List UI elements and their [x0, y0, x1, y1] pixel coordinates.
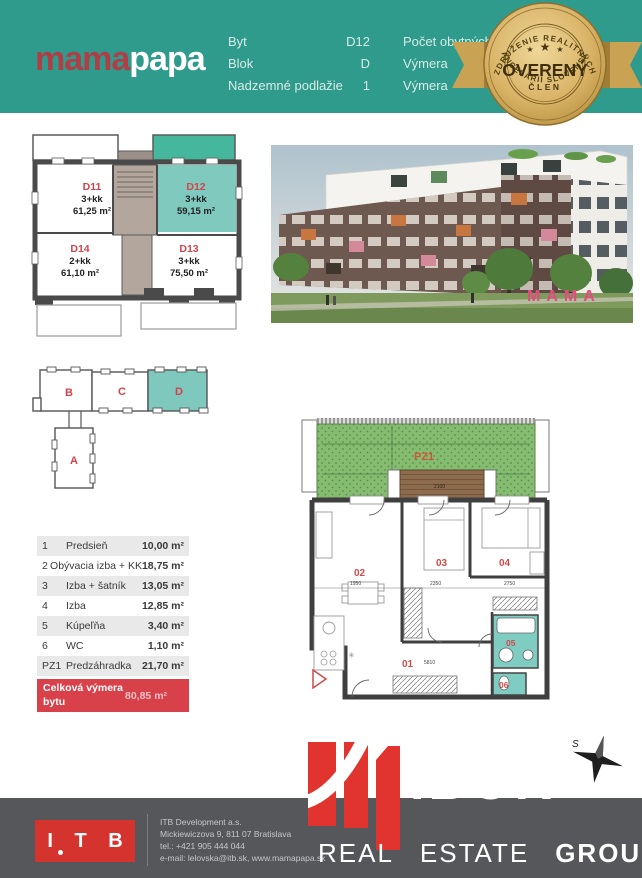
- block-label-c: C: [118, 386, 126, 398]
- side-strip-left: [302, 420, 317, 492]
- itb-logo-dot: [58, 850, 63, 855]
- block-label-d: D: [175, 386, 183, 398]
- total-value: 80,85 m²: [125, 690, 167, 702]
- row-name: Obývacia izba + KK: [50, 560, 142, 572]
- field-label: Výmera: [403, 53, 448, 75]
- row-area: 3,40 m²: [148, 620, 184, 632]
- unit-id: D11: [83, 181, 102, 193]
- unit-layout: 3+kk: [81, 194, 103, 205]
- unit-area: 59,15 m²: [177, 206, 215, 217]
- star-icon: ★: [526, 45, 533, 54]
- row-name: Predzáhradka: [66, 660, 142, 672]
- table-row: 3 Izba + šatník 13,05 m²: [37, 576, 189, 596]
- floorplan-overview: D11 3+kk 61,25 m² D12 3+kk 59,15 m² D14 …: [24, 132, 256, 342]
- field-label: Blok: [228, 53, 253, 75]
- wardrobe: [404, 588, 422, 638]
- side-strip-right: [535, 420, 549, 492]
- dim-room04: 2750: [504, 581, 515, 587]
- row-name: Izba + šatník: [66, 580, 142, 592]
- row-num: PZ1: [42, 660, 66, 672]
- logo-mama: mama: [35, 40, 129, 78]
- dim-room03: 2350: [430, 581, 441, 587]
- total-label: Celková výmera bytu: [43, 682, 125, 708]
- company-phone[interactable]: tel.: +421 905 444 044: [160, 840, 325, 852]
- row-num: 5: [42, 620, 66, 632]
- unit-area: 61,25 m²: [73, 206, 111, 217]
- row-num: 2: [42, 560, 50, 572]
- terrace-d11: [33, 135, 118, 160]
- field-value: 1: [363, 75, 370, 97]
- room-area-table: 1 Predsieň 10,00 m² 2 Obývacia izba + KK…: [37, 536, 189, 712]
- tagline-real: REAL: [318, 838, 394, 869]
- field-label: Nadzemné podlažie: [228, 75, 343, 97]
- dim-terrace: 2100: [434, 484, 445, 490]
- balcony-left: [37, 305, 121, 336]
- ibor-brand-name: IBOR: [410, 756, 556, 808]
- room-05-label: 05: [506, 638, 516, 648]
- mamapapa-logo: mamapapa: [35, 42, 205, 76]
- entrance-arrow-icon: [313, 670, 326, 688]
- row-num: 6: [42, 640, 66, 652]
- row-area: 13,05 m²: [142, 580, 184, 592]
- itb-logo-text: I T B: [39, 830, 130, 853]
- field-byt: Byt D12: [228, 31, 370, 53]
- table-row: 1 Predsieň 10,00 m²: [37, 536, 189, 556]
- row-area: 21,70 m²: [142, 660, 184, 672]
- company-address: Mickiewiczova 9, 811 07 Bratislava: [160, 828, 325, 840]
- room-01-label: 01: [402, 659, 414, 670]
- unit-id: D12: [186, 181, 205, 193]
- wardrobe: [493, 597, 537, 610]
- field-podlazie: Nadzemné podlažie 1: [228, 75, 370, 97]
- badge-title: OVERENÝ: [502, 59, 588, 80]
- site-block-diagram: B C D A: [25, 352, 240, 502]
- terrace-d12-highlight: [153, 135, 235, 160]
- row-area: 1,10 m²: [148, 640, 184, 652]
- itb-logo: I T B: [35, 820, 135, 862]
- table-row: PZ1 Predzáhradka 21,70 m²: [37, 656, 189, 676]
- row-name: WC: [66, 640, 148, 652]
- dim-hall: 5810: [424, 660, 435, 666]
- row-area: 10,00 m²: [142, 540, 184, 552]
- unit-layout: 3+kk: [185, 194, 207, 205]
- unit-summary-left: Byt D12 Blok D Nadzemné podlažie 1: [228, 31, 370, 97]
- row-name: Izba: [66, 600, 142, 612]
- row-num: 1: [42, 540, 66, 552]
- table-row: 2 Obývacia izba + KK 18,75 m²: [37, 556, 189, 576]
- table-row: 4 Izba 12,85 m²: [37, 596, 189, 616]
- table-row: 5 Kúpeľňa 3,40 m²: [37, 616, 189, 636]
- wc: [493, 673, 526, 695]
- hall-wardrobe: [393, 676, 457, 693]
- row-area: 12,85 m²: [142, 600, 184, 612]
- stair-core: [113, 165, 157, 235]
- compass-north-icon: S: [562, 733, 634, 785]
- compass-label: S: [572, 739, 579, 750]
- room-04-label: 04: [499, 558, 511, 569]
- field-label: Byt: [228, 31, 247, 53]
- field-value: D12: [346, 31, 370, 53]
- star-icon: ★: [556, 45, 563, 54]
- balcony-right: [141, 303, 236, 329]
- company-name: ITB Development a.s.: [160, 816, 325, 828]
- field-label: Výmera: [403, 75, 448, 97]
- unit-id: D14: [70, 243, 89, 255]
- unit-area: 75,50 m²: [170, 268, 208, 279]
- room-03-label: 03: [436, 558, 448, 569]
- row-name: Kúpeľňa: [66, 620, 148, 632]
- block-label-b: B: [65, 387, 73, 399]
- unit-layout: 2+kk: [69, 256, 91, 267]
- logo-papa: papa: [129, 40, 204, 78]
- dim-room02: 1950: [350, 581, 361, 587]
- footer-divider: [147, 814, 148, 866]
- unit-id: D13: [179, 243, 198, 255]
- field-blok: Blok D: [228, 53, 370, 75]
- boiler-symbol-icon: ✳: [348, 651, 355, 660]
- footer-contact-block: ITB Development a.s. Mickiewiczova 9, 81…: [160, 816, 325, 864]
- building-sign-mama: MAMA: [527, 288, 601, 305]
- corridor: [122, 235, 152, 295]
- tagline-estate: ESTATE: [420, 838, 529, 869]
- block-label-a: A: [70, 455, 78, 467]
- property-sheet-page: mamapapa Byt D12 Blok D Nadzemné podlaži…: [0, 0, 642, 878]
- row-num: 3: [42, 580, 66, 592]
- room-02-label: 02: [354, 568, 366, 579]
- overeny-badge-seal: ZDRUŽENIE REALITNÝCH KANCELÁRIÍ SLOVENSK…: [452, 0, 642, 136]
- ibor-tagline: REAL ESTATE GROUP: [318, 838, 642, 869]
- building-render-photo: MAMA: [271, 145, 633, 323]
- row-name: Predsieň: [66, 540, 142, 552]
- row-num: 4: [42, 600, 66, 612]
- garden-fence: [317, 418, 535, 424]
- tagline-group: GROUP: [555, 838, 642, 869]
- total-area-row: Celková výmera bytu 80,85 m²: [37, 679, 189, 712]
- garden-label: PZ1: [414, 451, 434, 463]
- row-area: 18,75 m²: [142, 560, 184, 572]
- unit-layout: 3+kk: [178, 256, 200, 267]
- badge-subtitle: ČLEN: [528, 81, 561, 92]
- star-icon: ★: [540, 40, 551, 54]
- company-email-web[interactable]: e-mail: lelovska@itb.sk, www.mamapapa.sk: [160, 852, 325, 864]
- field-value: D: [361, 53, 370, 75]
- room-06-label: 06: [499, 680, 509, 690]
- table-row: 6 WC 1,10 m²: [37, 636, 189, 656]
- apartment-detail-plan: PZ1 2100: [292, 412, 560, 752]
- unit-area: 61,10 m²: [61, 268, 99, 279]
